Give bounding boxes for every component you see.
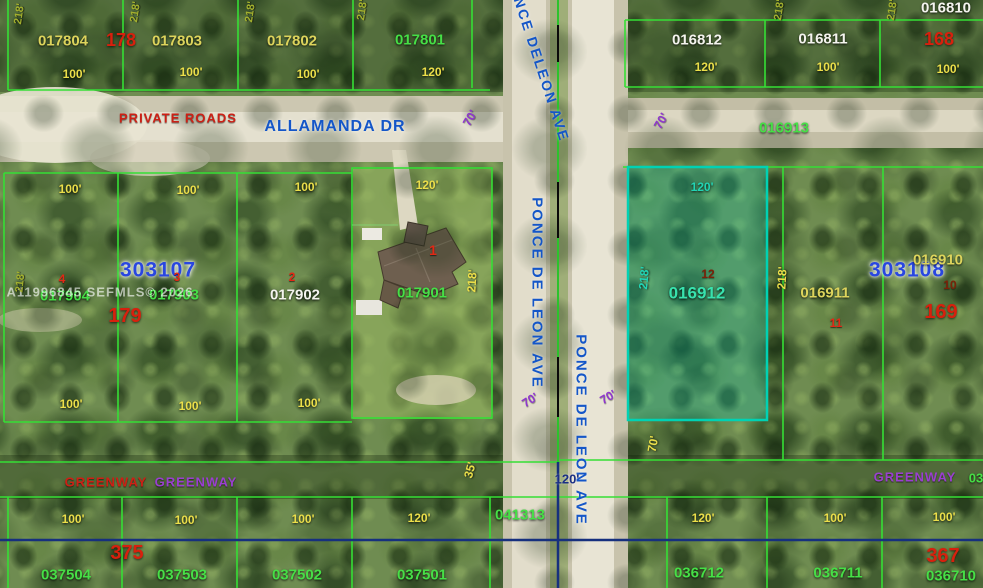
highlighted-parcel-label-016912: 016912 bbox=[669, 285, 726, 302]
parcel-label-036711: 036711 bbox=[813, 566, 862, 581]
dim-label-100: 100' bbox=[175, 514, 198, 526]
block-label-375: 375 bbox=[110, 543, 143, 563]
dim-label-120: 120' bbox=[422, 66, 445, 78]
dim-label-100: 100' bbox=[824, 512, 847, 524]
dim-label-120-navy: 120' bbox=[555, 473, 580, 486]
parcel-label-017803: 017803 bbox=[152, 34, 202, 49]
block-label-303107: 303107 bbox=[120, 260, 196, 281]
parcel-label-016910: 016910 bbox=[913, 253, 963, 268]
block-label-169: 169 bbox=[924, 302, 957, 322]
parcel-label-037502: 037502 bbox=[272, 568, 322, 583]
parcel-label-016911: 016911 bbox=[800, 286, 849, 301]
block-label-179: 179 bbox=[108, 306, 141, 326]
parcel-label-017804: 017804 bbox=[38, 34, 88, 49]
aerial-parcel-map: 017804 178 017803 017802 017801 100' 100… bbox=[0, 0, 983, 588]
greenway-label-purple: GREENWAY bbox=[155, 476, 238, 489]
dim-label-100: 100' bbox=[292, 513, 315, 525]
parcel-label-017802: 017802 bbox=[267, 34, 317, 49]
greenway-label-right: GREENWAY bbox=[874, 471, 957, 484]
dim-label-218: 218' bbox=[775, 266, 788, 289]
dim-label-100: 100' bbox=[298, 397, 321, 409]
dim-label-100: 100' bbox=[179, 400, 202, 412]
dim-label-120: 120' bbox=[692, 512, 715, 524]
dim-label-218: 218' bbox=[637, 266, 651, 290]
block-label-168: 168 bbox=[924, 30, 954, 48]
street-label-ponce-mid: PONCE DE LEON AVE bbox=[530, 197, 545, 389]
parcel-label-017801: 017801 bbox=[395, 33, 445, 48]
mls-watermark: A11996845 SEFMLS© 2026 bbox=[7, 286, 194, 299]
parcel-label-016811: 016811 bbox=[798, 32, 847, 47]
parcel-label-036710: 036710 bbox=[926, 569, 976, 584]
parcel-label-017902: 017902 bbox=[270, 288, 320, 303]
parcel-label-016812: 016812 bbox=[672, 33, 722, 48]
lot-number-4: 4 bbox=[59, 273, 66, 285]
dim-label-120: 120' bbox=[691, 181, 714, 193]
dim-label-100: 100' bbox=[59, 183, 82, 195]
parcel-label-037503: 037503 bbox=[157, 568, 207, 583]
parcel-label-037501: 037501 bbox=[397, 568, 447, 583]
road-parcel-label-016913: 016913 bbox=[759, 121, 809, 136]
dim-label-100: 100' bbox=[297, 68, 320, 80]
parcel-label-016810: 016810 bbox=[921, 1, 971, 16]
dim-label-100: 100' bbox=[933, 511, 956, 523]
street-label-ponce-right: PONCE DE LEON AVE bbox=[574, 334, 589, 526]
lot-number-12: 12 bbox=[701, 268, 714, 280]
lot-number-2: 2 bbox=[289, 271, 296, 283]
dim-label-120: 120' bbox=[695, 61, 718, 73]
dim-label-100: 100' bbox=[62, 513, 85, 525]
dim-label-100: 100' bbox=[180, 66, 203, 78]
parcel-label-017901: 017901 bbox=[397, 286, 447, 301]
greenway-label-red: GREENWAY bbox=[65, 476, 148, 489]
lot-number-3: 3 bbox=[174, 271, 181, 283]
parcel-label-037504: 037504 bbox=[41, 568, 91, 583]
lot-number-10: 10 bbox=[943, 279, 956, 291]
dim-label-100: 100' bbox=[60, 398, 83, 410]
dim-label-100: 100' bbox=[295, 181, 318, 193]
dim-label-70: 70' bbox=[646, 435, 661, 453]
dim-label-100: 100' bbox=[817, 61, 840, 73]
block-label-178: 178 bbox=[106, 31, 136, 49]
parcel-label-041313: 041313 bbox=[495, 508, 545, 523]
street-label-private-roads: PRIVATE ROADS bbox=[119, 112, 237, 125]
lot-number-11: 11 bbox=[830, 317, 843, 329]
block-label-367: 367 bbox=[926, 546, 959, 566]
street-label-allamanda-dr: ALLAMANDA DR bbox=[264, 119, 405, 135]
lot-number-1: 1 bbox=[429, 243, 437, 257]
dim-label-218: 218' bbox=[14, 271, 27, 293]
dim-label-100: 100' bbox=[937, 63, 960, 75]
dim-label-120: 120' bbox=[416, 179, 439, 191]
dim-label-120: 120' bbox=[408, 512, 431, 524]
dim-label-100: 100' bbox=[63, 68, 86, 80]
dim-label-218: 218' bbox=[465, 269, 478, 292]
parcel-label-036712: 036712 bbox=[674, 566, 724, 581]
dim-label-100: 100' bbox=[177, 184, 200, 196]
partial-label-03: 03 bbox=[969, 472, 983, 485]
